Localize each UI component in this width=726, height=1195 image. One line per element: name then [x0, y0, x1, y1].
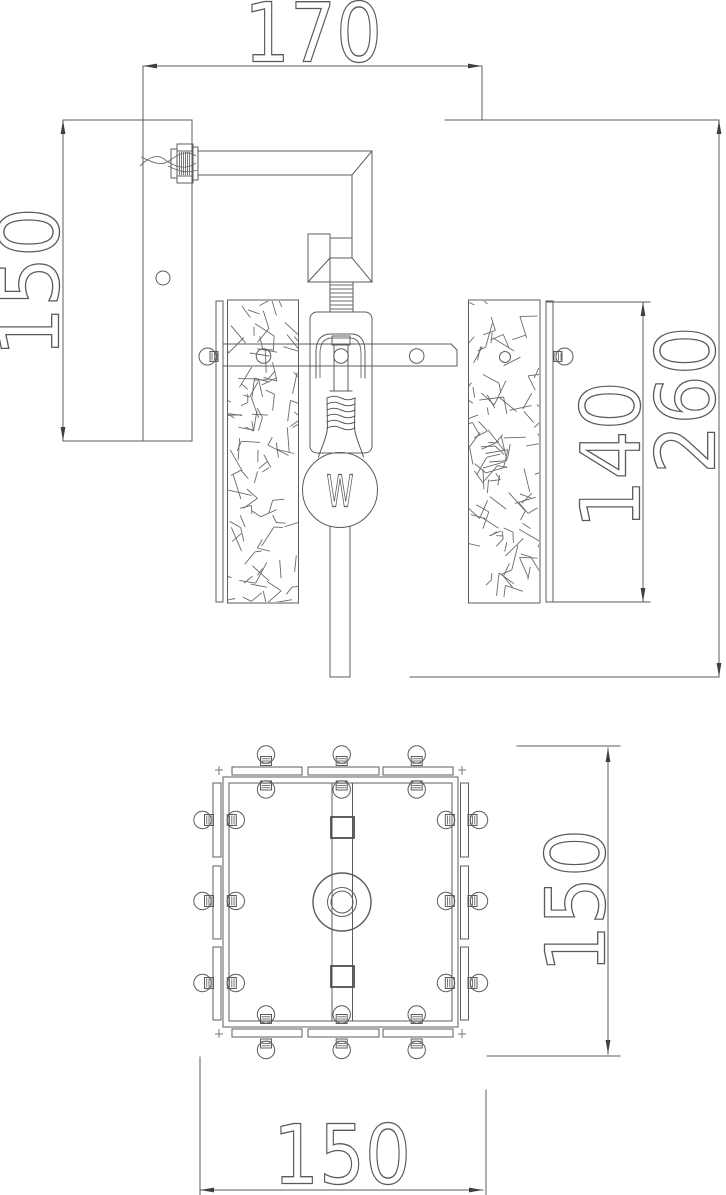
lock-square	[331, 966, 354, 987]
crackle-line	[499, 383, 501, 393]
hanging-rod	[330, 527, 350, 677]
washer	[171, 149, 177, 178]
crackle-line	[505, 542, 507, 551]
crackle-line	[484, 466, 497, 481]
crackle-line	[534, 368, 539, 378]
arrowhead-icon	[717, 663, 722, 677]
crackle-line	[261, 510, 277, 517]
crackle-line	[481, 298, 488, 305]
arrowhead-icon	[641, 588, 646, 602]
dimension-value: 150	[273, 1109, 411, 1195]
crackle-line	[490, 532, 497, 536]
crackle-line	[487, 454, 501, 457]
crackle-line	[288, 400, 291, 421]
lamp-socket	[316, 334, 365, 391]
dimension-value: 170	[244, 0, 382, 82]
crackle-line	[283, 347, 302, 353]
crackle-line	[508, 444, 511, 459]
crackle-line	[214, 586, 215, 603]
crackle-line	[259, 461, 268, 468]
crackle-line	[303, 521, 310, 532]
bar-hole	[409, 349, 424, 364]
holder-skirt	[308, 258, 330, 282]
glass-strip	[461, 947, 469, 1020]
crackle-line	[503, 564, 509, 577]
crackle-line	[472, 422, 479, 435]
crackle-line	[487, 480, 488, 494]
arrowhead-icon	[606, 1040, 611, 1054]
threaded-stud	[330, 282, 353, 312]
crackle-line	[474, 471, 483, 483]
crackle-line	[241, 441, 260, 442]
crackle-line	[286, 587, 292, 594]
bolt	[437, 974, 454, 991]
lamp-housing	[310, 312, 372, 453]
crackle-line	[292, 585, 308, 587]
corner-marks	[215, 766, 466, 1038]
bolt	[194, 974, 214, 991]
crackle-line	[487, 408, 488, 416]
crackle-line	[473, 387, 475, 398]
crackle-line	[280, 560, 281, 579]
dimension-height-150-left: 150	[0, 120, 192, 441]
bolt	[227, 811, 244, 828]
bolt	[468, 974, 488, 991]
crackle-line	[239, 367, 251, 387]
crackle-line	[470, 447, 473, 465]
crackle-line	[262, 527, 274, 546]
bolt	[194, 892, 214, 909]
bolt	[194, 811, 214, 828]
crackle-line	[240, 505, 252, 508]
crackle-line	[487, 395, 495, 408]
crackle-line	[505, 585, 522, 591]
arrowhead-icon	[468, 64, 482, 69]
technical-drawing-canvas: 170 150 140 260	[0, 0, 726, 1195]
bolt	[408, 1006, 425, 1024]
crackle-line	[453, 283, 454, 296]
crackle-line	[241, 528, 244, 542]
crackle-line	[497, 573, 500, 596]
arm-holder	[308, 234, 372, 282]
crackle-line	[265, 349, 266, 373]
crackle-line	[231, 470, 241, 475]
crackle-line	[464, 415, 478, 420]
crackle-line	[486, 467, 507, 473]
arrowhead-icon	[200, 1188, 214, 1193]
crackle-line	[293, 373, 297, 393]
crackle-line	[255, 551, 262, 552]
crackle-line	[456, 423, 473, 427]
crackle-line	[483, 462, 504, 468]
glass-strip	[461, 783, 469, 857]
glass-strip	[308, 767, 379, 775]
crackle-line	[470, 432, 481, 446]
crackle-line	[250, 353, 270, 356]
crackle-line	[276, 523, 285, 524]
bolt	[227, 892, 244, 909]
crackle-line	[526, 443, 543, 446]
crackle-line	[504, 397, 507, 414]
crackle-line	[537, 404, 547, 415]
crackle-line	[471, 515, 486, 519]
crackle-line	[231, 527, 241, 551]
wall-plate	[143, 120, 192, 441]
bolt	[408, 781, 425, 798]
glass-strips	[213, 767, 469, 1037]
bar-hole	[334, 349, 349, 364]
arrowhead-icon	[717, 120, 722, 134]
crackle-line	[256, 562, 267, 583]
boss-outer-circle	[313, 873, 371, 931]
panel-hole	[500, 352, 511, 363]
dimension-value: 260	[640, 326, 726, 474]
crackle-line	[263, 468, 270, 472]
bolt	[437, 811, 454, 828]
mounting-bolts	[194, 746, 488, 1059]
crackle-line	[252, 511, 261, 517]
arrowhead-icon	[143, 64, 157, 69]
crackle-line	[491, 335, 504, 341]
socket-boss	[313, 873, 371, 931]
crackle-line	[528, 508, 537, 514]
mounting-arm	[198, 151, 372, 282]
crackle-line	[521, 554, 531, 557]
cable-wires	[140, 153, 197, 172]
frame-outer	[223, 777, 458, 1027]
crackle-line	[242, 306, 250, 318]
crackle-line	[267, 582, 281, 591]
crackle-line	[504, 585, 506, 597]
arrowhead-icon	[641, 302, 646, 316]
crackle-line	[229, 338, 244, 354]
crackle-line	[504, 437, 526, 438]
crackle-line	[502, 531, 503, 539]
arm-miter	[352, 151, 372, 175]
crackle-line	[230, 521, 241, 527]
arrowhead-icon	[61, 427, 66, 441]
crackle-line	[504, 528, 513, 532]
arrowhead-icon	[61, 120, 66, 134]
crackle-line	[499, 573, 514, 584]
bolt	[333, 1006, 350, 1024]
bolt	[437, 892, 454, 909]
crackle-texture	[211, 299, 311, 604]
crackle-line	[212, 571, 231, 578]
crackle-line	[523, 523, 531, 528]
glass-strip	[383, 1029, 453, 1037]
crackle-line	[496, 539, 503, 546]
bolt	[468, 811, 488, 828]
crackle-line	[287, 427, 289, 452]
glass-panel-right	[453, 283, 565, 603]
dimension-width-170: 170	[143, 0, 482, 120]
crackle-line	[231, 326, 246, 344]
side-screw-left	[199, 348, 218, 365]
crackle-line	[252, 414, 268, 415]
side-screw-right	[554, 348, 573, 365]
crackle-line	[273, 336, 274, 351]
glass-edge-strip	[216, 301, 223, 602]
crackle-line	[285, 322, 299, 335]
crackle-line	[211, 373, 212, 391]
crackle-line	[233, 474, 241, 499]
bolt	[257, 781, 274, 798]
boss-inner-circle	[331, 891, 353, 913]
crackle-line	[273, 515, 277, 523]
crackle-line	[244, 395, 250, 397]
crackle-line	[245, 552, 255, 564]
crackle-line	[534, 415, 547, 427]
glass-strip	[213, 866, 221, 939]
bulb-base-threads	[319, 396, 364, 457]
crackle-line	[247, 489, 258, 498]
crackle-line	[463, 542, 480, 546]
crackle-line	[248, 310, 260, 314]
crackle-line	[257, 548, 270, 551]
crackle-line	[483, 469, 484, 489]
crackle-line	[478, 421, 487, 431]
crackle-line	[505, 538, 523, 556]
crackle-line	[264, 455, 271, 468]
crackle-line	[524, 469, 530, 493]
filament-mark: W	[327, 467, 354, 518]
dimension-width-150-bottom: 150	[200, 1057, 486, 1195]
glass-strip	[308, 1029, 379, 1037]
crackle-line	[251, 593, 261, 602]
crackle-line	[539, 368, 558, 371]
crackle-line	[273, 394, 275, 410]
crackle-line	[259, 417, 263, 431]
holder-skirt	[352, 258, 372, 282]
base-frame	[215, 766, 466, 1038]
bolt	[333, 1039, 350, 1059]
crackle-line	[524, 411, 534, 422]
arrowhead-icon	[606, 748, 611, 762]
dimension-value: 150	[530, 829, 625, 973]
crackle-line	[276, 449, 294, 453]
plan-view: 150 150	[194, 746, 625, 1195]
dimension-value: 150	[0, 207, 79, 357]
crackle-line	[500, 398, 517, 412]
crackle-line	[474, 347, 483, 364]
frame-inner	[229, 783, 452, 1021]
crackle-line	[251, 505, 252, 514]
crackle-line	[512, 335, 526, 340]
glass-panel-outline	[228, 300, 299, 603]
crackle-line	[486, 323, 493, 347]
bolt	[408, 746, 425, 766]
bolt	[257, 746, 274, 766]
crackle-line	[519, 503, 528, 514]
crackle-line	[491, 333, 492, 344]
crackle-line	[272, 299, 277, 315]
crackle-line	[461, 395, 473, 403]
crackle-line	[252, 421, 254, 430]
mounting-hole	[156, 271, 170, 285]
crackle-line	[480, 500, 488, 518]
crackle-line	[273, 499, 285, 500]
crackle-line	[520, 557, 529, 578]
crackle-line	[477, 457, 487, 474]
crackle-line	[258, 329, 269, 343]
crackle-line	[491, 573, 492, 580]
crackle-line	[267, 591, 281, 603]
crackle-line	[462, 337, 474, 352]
crackle-line	[285, 521, 304, 527]
crackle-line	[481, 295, 488, 298]
holder-block	[330, 238, 352, 258]
center-bar	[331, 783, 354, 1021]
crackle-line	[268, 437, 272, 445]
bolt	[227, 974, 244, 991]
crackle-line	[263, 311, 269, 329]
crackle-line	[243, 597, 252, 601]
bolt	[408, 1039, 425, 1059]
crackle-line	[295, 555, 297, 572]
glass-strip	[213, 947, 221, 1020]
crackle-line	[297, 372, 303, 373]
bolt	[468, 892, 488, 909]
glass-strip	[232, 767, 302, 775]
crackle-line	[251, 584, 267, 587]
bolt	[333, 746, 350, 766]
bolt	[257, 1006, 274, 1024]
glass-panel-left	[211, 299, 311, 604]
drawing-sheet: 170 150 140 260	[0, 0, 726, 1195]
screw-head	[199, 348, 216, 365]
crackle-line	[230, 450, 242, 471]
crackle-line	[528, 374, 545, 376]
glass-strip	[383, 767, 453, 775]
threaded-nipple	[171, 144, 198, 183]
crackle-line	[461, 383, 471, 395]
arrowhead-icon	[469, 1188, 483, 1193]
crackle-line	[228, 490, 251, 495]
glass-edge-strip	[546, 301, 553, 602]
crackle-line	[493, 338, 514, 351]
holder-block	[308, 234, 330, 282]
crackle-line	[241, 470, 249, 479]
crackle-texture	[453, 283, 565, 597]
crackle-line	[241, 383, 248, 389]
glass-strip	[213, 783, 221, 857]
crackle-line	[489, 461, 507, 462]
wall-plate-outline	[143, 120, 192, 441]
crackle-line	[266, 390, 275, 394]
front-view: 170 150 140 260	[0, 0, 726, 677]
crossbar	[223, 344, 457, 366]
crackle-line	[254, 471, 257, 483]
crackle-line	[241, 403, 248, 406]
glass-strip	[461, 866, 469, 939]
crackle-line	[474, 431, 487, 438]
crackle-line	[531, 557, 540, 572]
crackle-line	[488, 442, 495, 443]
bolt	[333, 781, 350, 798]
crackle-line	[263, 591, 266, 604]
crackle-line	[490, 497, 506, 510]
crackle-line	[258, 379, 262, 397]
crackle-line	[483, 375, 499, 384]
crackle-line	[521, 511, 526, 520]
crackle-line	[520, 557, 538, 558]
dimension-depth-150-right: 150	[487, 746, 625, 1056]
crackle-line	[464, 408, 465, 420]
crackle-line	[301, 356, 311, 369]
glass-strip	[232, 1029, 302, 1037]
crackle-line	[557, 467, 565, 479]
crackle-line	[486, 580, 491, 585]
bolt	[257, 1039, 274, 1059]
lock-square	[331, 817, 354, 838]
light-bulb: W	[303, 453, 378, 528]
crackle-line	[257, 540, 262, 548]
crackle-line	[240, 515, 245, 527]
